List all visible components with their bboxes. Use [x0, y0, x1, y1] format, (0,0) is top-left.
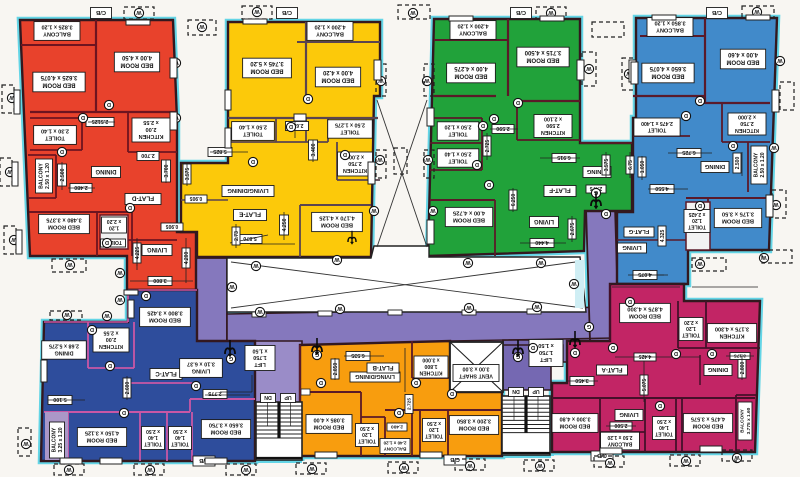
svg-text:BED ROOM: BED ROOM — [321, 222, 353, 228]
svg-text:0.905: 0.905 — [190, 195, 203, 201]
svg-text:BALCONY: BALCONY — [52, 427, 58, 452]
svg-text:5.825: 5.825 — [213, 148, 227, 154]
svg-text:4.170 x 4.125: 4.170 x 4.125 — [319, 214, 355, 220]
svg-text:BED ROOM: BED ROOM — [651, 73, 684, 79]
svg-text:3.700: 3.700 — [164, 164, 170, 177]
svg-text:TOILET: TOILET — [144, 441, 162, 447]
svg-text:W: W — [64, 311, 70, 317]
svg-text:C/B: C/B — [516, 9, 526, 15]
svg-text:FLAT-B: FLAT-B — [372, 364, 394, 370]
svg-text:x 2.50: x 2.50 — [657, 418, 671, 424]
svg-text:D: D — [731, 142, 735, 148]
svg-text:3.400: 3.400 — [311, 143, 317, 156]
svg-text:2.40 x 1.20: 2.40 x 1.20 — [383, 440, 406, 445]
svg-text:2.500: 2.500 — [735, 157, 741, 170]
svg-text:W: W — [425, 156, 431, 162]
svg-text:D: D — [251, 158, 255, 164]
svg-text:D: D — [414, 379, 418, 385]
svg-text:6.915: 6.915 — [557, 154, 571, 160]
svg-text:3.00 x 3.00: 3.00 x 3.00 — [463, 366, 490, 372]
svg-text:3.450: 3.450 — [575, 377, 589, 383]
svg-text:VENT SHAFT: VENT SHAFT — [458, 372, 493, 378]
svg-text:W: W — [337, 305, 343, 311]
svg-text:D: D — [481, 122, 485, 128]
svg-text:D: D — [674, 350, 678, 356]
svg-text:1.40: 1.40 — [175, 434, 185, 440]
svg-text:BALCONY: BALCONY — [39, 163, 45, 189]
svg-text:D: D — [194, 382, 198, 388]
svg-text:3.715 x 4.500: 3.715 x 4.500 — [524, 49, 561, 55]
svg-text:TOILET: TOILET — [171, 441, 189, 447]
svg-text:x 2.55: x 2.55 — [143, 119, 159, 125]
svg-text:2.750: 2.750 — [348, 160, 362, 166]
svg-text:W: W — [754, 8, 760, 14]
svg-text:2.50 x 1.275: 2.50 x 1.275 — [335, 122, 365, 128]
svg-text:TOILET: TOILET — [45, 134, 65, 140]
svg-text:4.150 x 3.125: 4.150 x 3.125 — [85, 430, 119, 436]
svg-text:2.750: 2.750 — [740, 120, 754, 126]
svg-text:LIVING: LIVING — [147, 246, 167, 252]
svg-text:2.00: 2.00 — [106, 336, 117, 342]
svg-text:W: W — [410, 9, 416, 15]
svg-text:D: D — [492, 115, 496, 121]
svg-text:D: D — [698, 97, 702, 103]
svg-text:2.800: 2.800 — [740, 362, 746, 375]
svg-text:G: G — [587, 323, 591, 329]
svg-text:D: D — [90, 326, 94, 332]
svg-text:x 2.425: x 2.425 — [688, 211, 705, 217]
svg-text:KITCHEN: KITCHEN — [735, 127, 759, 133]
svg-text:4.00 x 4.50: 4.00 x 4.50 — [121, 54, 152, 60]
svg-text:LIVING/DINING: LIVING/DINING — [227, 187, 269, 193]
svg-text:3.300 x 4.80: 3.300 x 4.80 — [559, 416, 590, 422]
svg-text:5.100: 5.100 — [53, 396, 67, 402]
svg-text:LIFT: LIFT — [540, 356, 552, 362]
svg-text:3.745 x 5.20: 3.745 x 5.20 — [250, 60, 284, 66]
svg-text:W: W — [66, 466, 72, 472]
svg-text:D: D — [611, 344, 615, 350]
svg-text:W: W — [777, 57, 783, 63]
svg-text:2.400: 2.400 — [391, 423, 403, 429]
svg-text:6.725: 6.725 — [682, 149, 696, 155]
svg-text:D: D — [487, 181, 491, 187]
svg-text:W: W — [377, 156, 383, 162]
svg-text:W: W — [253, 262, 259, 268]
svg-text:W: W — [773, 201, 779, 207]
svg-text:2.850: 2.850 — [333, 363, 339, 376]
svg-text:C/B: C/B — [282, 9, 292, 15]
svg-text:D: D — [343, 151, 347, 157]
svg-text:3.175 x 4.300: 3.175 x 4.300 — [715, 326, 749, 332]
svg-text:LIVING: LIVING — [619, 411, 639, 417]
svg-text:W: W — [136, 9, 142, 15]
svg-text:4.00 x 4.20: 4.00 x 4.20 — [322, 69, 353, 75]
svg-text:D: D — [475, 161, 479, 167]
svg-text:D: D — [122, 409, 126, 415]
svg-text:D: D — [144, 292, 148, 298]
svg-text:2.30 x 1.40: 2.30 x 1.40 — [41, 128, 69, 134]
svg-text:6.75: 6.75 — [628, 160, 634, 170]
svg-text:4.475 x 3.575: 4.475 x 3.575 — [691, 416, 725, 422]
svg-text:BALCONY: BALCONY — [607, 440, 632, 446]
svg-text:1.20: 1.20 — [429, 426, 439, 432]
svg-text:5.075: 5.075 — [642, 379, 648, 392]
svg-text:BED ROOM: BED ROOM — [149, 317, 181, 323]
svg-text:D: D — [573, 349, 577, 355]
svg-text:x 2.50: x 2.50 — [360, 425, 374, 431]
svg-text:2.00: 2.00 — [146, 126, 157, 132]
svg-text:3.650 x 4.075: 3.650 x 4.075 — [649, 65, 686, 71]
svg-text:1.20: 1.20 — [692, 217, 702, 223]
svg-text:D: D — [531, 344, 535, 350]
svg-text:BED ROOM: BED ROOM — [629, 313, 661, 319]
svg-text:BED ROOM: BED ROOM — [48, 224, 80, 230]
svg-text:3.575: 3.575 — [185, 168, 191, 181]
svg-text:LIVING: LIVING — [622, 244, 642, 250]
svg-text:3.200 x 3.850: 3.200 x 3.850 — [457, 418, 491, 424]
svg-text:KITCHEN: KITCHEN — [139, 133, 164, 139]
svg-text:LIFT: LIFT — [254, 361, 266, 367]
svg-text:W: W — [243, 466, 249, 472]
svg-text:4.200 x 1.20: 4.200 x 1.20 — [314, 24, 345, 30]
svg-text:D: D — [710, 350, 714, 356]
svg-text:TOILET: TOILET — [243, 130, 263, 136]
svg-text:BALCONY: BALCONY — [740, 408, 746, 433]
svg-text:x 2.20: x 2.20 — [684, 319, 698, 325]
svg-text:W: W — [254, 8, 260, 14]
svg-text:D: D — [128, 204, 132, 210]
svg-text:D: D — [698, 202, 702, 208]
svg-text:4.550: 4.550 — [655, 185, 669, 191]
svg-text:W: W — [371, 207, 377, 213]
svg-text:W: W — [683, 457, 689, 463]
svg-text:6.250: 6.250 — [511, 194, 517, 207]
svg-text:4.325: 4.325 — [660, 230, 666, 243]
svg-text:W: W — [23, 440, 29, 446]
svg-text:4.00 x 4.60: 4.00 x 4.60 — [727, 51, 758, 57]
svg-text:3.650 x 3.750: 3.650 x 3.750 — [209, 422, 243, 428]
svg-text:W: W — [229, 283, 235, 289]
svg-text:W: W — [430, 207, 436, 213]
svg-text:TOILET: TOILET — [682, 332, 700, 338]
svg-text:2.590: 2.590 — [546, 122, 560, 128]
svg-text:KITCHEN: KITCHEN — [419, 370, 442, 376]
svg-text:x 2.50: x 2.50 — [146, 428, 160, 434]
svg-text:W: W — [538, 259, 544, 265]
svg-text:D: D — [81, 114, 85, 120]
svg-text:W: W — [67, 261, 73, 267]
svg-text:C/B: C/B — [96, 9, 106, 15]
svg-text:3.175: 3.175 — [734, 352, 746, 358]
svg-text:W: W — [537, 462, 543, 468]
svg-text:D: D — [516, 99, 520, 105]
svg-text:DINING: DINING — [95, 168, 116, 174]
svg-text:x 2.50: x 2.50 — [427, 420, 441, 426]
svg-text:x 2.100: x 2.100 — [544, 115, 562, 121]
svg-text:TOILET: TOILET — [340, 128, 360, 134]
svg-text:D: D — [107, 101, 111, 107]
svg-text:W: W — [104, 312, 110, 318]
svg-text:2.725: 2.725 — [485, 140, 491, 153]
svg-text:BALCONY: BALCONY — [384, 446, 407, 451]
svg-text:FLAT-F: FLAT-F — [549, 187, 571, 194]
svg-text:W: W — [334, 256, 340, 262]
svg-text:LIVING/DINING: LIVING/DINING — [355, 373, 395, 379]
svg-text:BALCONY: BALCONY — [656, 26, 684, 32]
svg-text:D: D — [105, 239, 109, 245]
svg-text:BED ROOM: BED ROOM — [321, 77, 354, 83]
svg-text:3.825 x 1.20: 3.825 x 1.20 — [41, 24, 72, 30]
svg-text:3.800 x 3.425: 3.800 x 3.425 — [147, 309, 183, 315]
svg-text:DINING: DINING — [707, 366, 728, 372]
svg-text:UP: UP — [532, 388, 540, 394]
svg-text:FLAT-G: FLAT-G — [628, 228, 649, 234]
svg-text:2.50 x 1.20: 2.50 x 1.20 — [760, 152, 766, 177]
svg-text:x 1.50: x 1.50 — [253, 347, 268, 353]
svg-text:BED ROOM: BED ROOM — [692, 422, 723, 428]
svg-text:W: W — [309, 465, 315, 471]
svg-text:3.575: 3.575 — [604, 159, 610, 172]
svg-text:W: W — [465, 259, 471, 265]
svg-text:W: W — [199, 23, 205, 29]
svg-text:4.425: 4.425 — [639, 353, 652, 359]
svg-text:KITCHEN: KITCHEN — [541, 129, 565, 135]
svg-text:1.750: 1.750 — [539, 349, 553, 355]
svg-text:2.50 x 1.20: 2.50 x 1.20 — [607, 434, 632, 440]
svg-text:BED ROOM: BED ROOM — [458, 424, 489, 430]
svg-text:1.20: 1.20 — [362, 431, 372, 437]
svg-text:W: W — [147, 466, 153, 472]
svg-text:BED ROOM: BED ROOM — [526, 57, 559, 63]
svg-text:4.075: 4.075 — [638, 271, 652, 277]
svg-text:4.250: 4.250 — [282, 218, 288, 231]
svg-text:D: D — [604, 210, 608, 216]
svg-text:1.40: 1.40 — [148, 434, 158, 440]
svg-text:4.200 x 1.20: 4.200 x 1.20 — [457, 23, 488, 29]
svg-text:2.73: 2.73 — [234, 231, 240, 241]
svg-text:TOILET: TOILET — [448, 130, 468, 136]
svg-text:W: W — [117, 296, 123, 302]
svg-text:x 3.000: x 3.000 — [422, 357, 439, 363]
svg-text:BED ROOM: BED ROOM — [722, 218, 754, 224]
svg-text:3.480 x 3.375: 3.480 x 3.375 — [46, 216, 82, 222]
svg-text:2.68 x 5.275: 2.68 x 5.275 — [49, 343, 79, 349]
svg-text:W: W — [401, 464, 407, 470]
svg-text:1.050: 1.050 — [640, 161, 646, 174]
svg-text:UP: UP — [284, 394, 292, 400]
svg-text:W: W — [607, 459, 613, 465]
svg-text:2.50 x 1.40: 2.50 x 1.40 — [445, 151, 472, 157]
svg-text:3.085 x 4.00: 3.085 x 4.00 — [313, 417, 344, 423]
svg-text:2.50 x 1.40: 2.50 x 1.40 — [239, 124, 267, 130]
svg-text:DN: DN — [512, 388, 520, 394]
svg-text:2.700: 2.700 — [141, 152, 155, 158]
svg-text:BED ROOM: BED ROOM — [210, 428, 241, 434]
svg-text:TOILET: TOILET — [647, 126, 666, 132]
svg-text:LIVING: LIVING — [534, 218, 554, 224]
svg-text:DINING: DINING — [55, 349, 74, 355]
svg-text:W: W — [257, 308, 263, 314]
svg-text:D: D — [658, 402, 662, 408]
svg-text:W: W — [771, 144, 777, 150]
svg-text:D: D — [319, 379, 323, 385]
svg-text:2.675: 2.675 — [570, 223, 576, 236]
svg-text:BED ROOM: BED ROOM — [120, 62, 153, 68]
svg-text:BED ROOM: BED ROOM — [42, 82, 75, 88]
svg-text:2.50 x 1.20: 2.50 x 1.20 — [45, 163, 51, 189]
svg-text:2.475 x 1.400: 2.475 x 1.400 — [641, 120, 673, 126]
svg-text:BED ROOM: BED ROOM — [453, 217, 485, 223]
svg-text:FLAT-D: FLAT-D — [131, 195, 154, 202]
svg-text:TOILET: TOILET — [655, 431, 673, 437]
svg-text:4.00 x 4.275: 4.00 x 4.275 — [454, 65, 488, 71]
svg-text:KITCHEN: KITCHEN — [343, 167, 367, 173]
svg-text:W: W — [734, 454, 740, 460]
svg-text:W: W — [534, 303, 540, 309]
svg-text:1.20: 1.20 — [109, 224, 119, 230]
svg-text:6.535: 6.535 — [351, 352, 365, 358]
svg-text:KITCHEN: KITCHEN — [720, 332, 745, 338]
svg-text:D: D — [60, 148, 64, 154]
svg-text:4.200: 4.200 — [184, 252, 190, 265]
svg-text:D: D — [397, 409, 401, 415]
svg-text:W: W — [466, 304, 472, 310]
svg-text:3.775 x 1.60: 3.775 x 1.60 — [746, 407, 752, 434]
svg-text:TOILET: TOILET — [688, 224, 706, 230]
svg-text:LIVING: LIVING — [192, 367, 211, 373]
svg-text:DN: DN — [264, 394, 272, 400]
svg-text:W: W — [571, 280, 577, 286]
svg-text:x 2.55: x 2.55 — [104, 329, 119, 335]
svg-text:BALCONY: BALCONY — [43, 30, 71, 36]
svg-text:FLAT-C: FLAT-C — [155, 370, 177, 377]
svg-text:W: W — [586, 65, 592, 71]
svg-text:3.800: 3.800 — [153, 277, 167, 283]
svg-text:D: D — [450, 390, 454, 396]
svg-text:x 2.20: x 2.20 — [107, 218, 122, 224]
svg-text:1.20: 1.20 — [686, 325, 696, 331]
svg-text:2.600: 2.600 — [125, 382, 131, 395]
svg-text:2.500: 2.500 — [60, 168, 66, 181]
svg-text:x 1.50: x 1.50 — [538, 342, 554, 348]
svg-text:TOILET: TOILET — [448, 157, 468, 163]
svg-text:BED ROOM: BED ROOM — [250, 68, 283, 74]
svg-text:BED ROOM: BED ROOM — [726, 59, 759, 65]
svg-text:C/B: C/B — [712, 9, 722, 15]
svg-text:W: W — [467, 462, 473, 468]
svg-text:BALCONY: BALCONY — [459, 29, 487, 35]
svg-text:BALCONY: BALCONY — [316, 30, 344, 36]
svg-text:2.590: 2.590 — [496, 125, 510, 131]
svg-text:FLAT-E: FLAT-E — [238, 211, 261, 218]
svg-text:2.725: 2.725 — [407, 398, 413, 410]
svg-text:D: D — [108, 362, 112, 368]
svg-text:1.750: 1.750 — [253, 354, 267, 360]
svg-text:W: W — [117, 269, 123, 275]
svg-text:4.440: 4.440 — [535, 239, 549, 245]
svg-text:KITCHEN: KITCHEN — [99, 343, 123, 349]
svg-text:W: W — [697, 260, 703, 266]
svg-text:BALCONY: BALCONY — [754, 152, 760, 177]
svg-text:FLAT-A: FLAT-A — [601, 366, 623, 372]
svg-text:4.00 x 4.725: 4.00 x 4.725 — [452, 209, 485, 215]
svg-text:3.10 x 6.37: 3.10 x 6.37 — [187, 361, 215, 367]
svg-text:D: D — [628, 298, 632, 304]
svg-text:D: D — [306, 95, 310, 101]
svg-text:DINING: DINING — [704, 163, 725, 169]
svg-text:BED ROOM: BED ROOM — [313, 423, 344, 429]
svg-text:3.625 x 4.075: 3.625 x 4.075 — [40, 74, 77, 80]
svg-text:x 2.50: x 2.50 — [173, 428, 187, 434]
svg-text:TOILET: TOILET — [358, 438, 376, 444]
svg-text:W: W — [548, 9, 554, 15]
svg-text:BED ROOM: BED ROOM — [559, 422, 590, 428]
svg-text:D: D — [684, 112, 688, 118]
svg-text:0.905: 0.905 — [166, 223, 179, 229]
svg-text:3.25 x 1.20: 3.25 x 1.20 — [58, 427, 64, 452]
svg-text:2.500: 2.500 — [614, 422, 627, 428]
svg-text:D: D — [289, 123, 293, 129]
svg-text:x 2.000: x 2.000 — [738, 113, 756, 119]
svg-text:2.480: 2.480 — [74, 184, 88, 190]
svg-text:4.225: 4.225 — [135, 247, 141, 260]
svg-text:3.175 x 3.50: 3.175 x 3.50 — [722, 210, 754, 216]
svg-text:TOILET: TOILET — [425, 433, 443, 439]
svg-text:1.40: 1.40 — [659, 424, 669, 430]
svg-text:BED ROOM: BED ROOM — [86, 436, 117, 442]
svg-text:2.50 x 1.20: 2.50 x 1.20 — [445, 124, 472, 130]
svg-text:BED ROOM: BED ROOM — [454, 73, 487, 79]
svg-text:2.5125: 2.5125 — [92, 118, 109, 124]
svg-text:1.800: 1.800 — [424, 363, 437, 369]
